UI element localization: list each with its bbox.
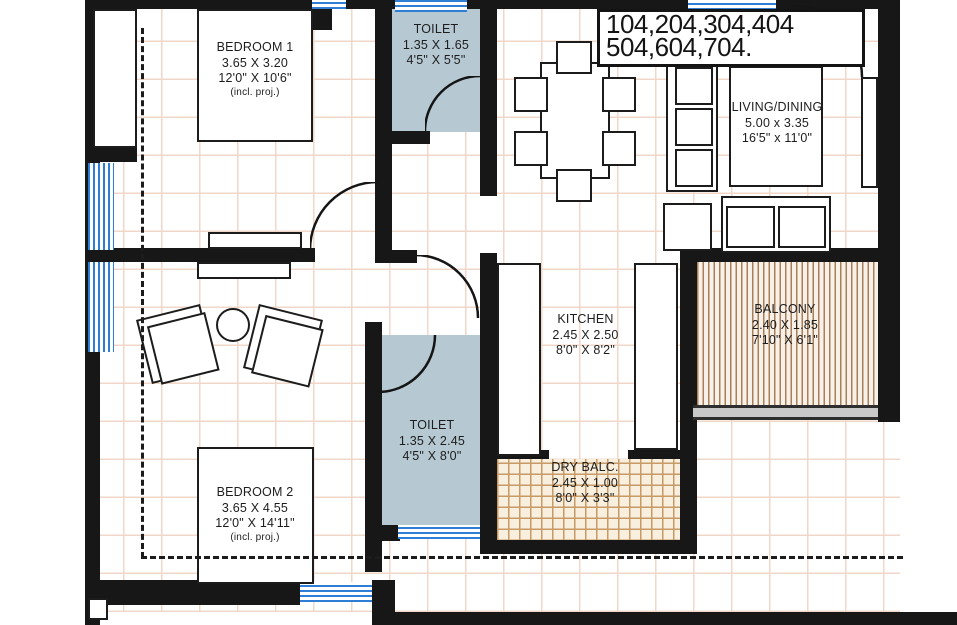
room-name: TOILET bbox=[410, 418, 455, 434]
wall-right bbox=[878, 0, 900, 422]
chair-bedroom2-right bbox=[243, 304, 323, 384]
sofa-cushion bbox=[778, 206, 827, 248]
kitchen-counter-left bbox=[497, 263, 541, 456]
room-name: DRY BALC. bbox=[551, 460, 618, 476]
projection-line-horizontal bbox=[141, 556, 903, 559]
room-name: BEDROOM 1 bbox=[217, 40, 294, 56]
room-dim-m: 5.00 x 3.35 bbox=[745, 116, 809, 132]
room-dim-m: 3.65 X 4.55 bbox=[222, 501, 288, 517]
room-dim-ft: 4'5" X 5'5" bbox=[407, 53, 466, 69]
dining-chair-right-2 bbox=[602, 131, 636, 166]
window-toilet1-top bbox=[395, 0, 467, 12]
window-top-mid bbox=[312, 0, 346, 9]
sofa-cushion bbox=[726, 206, 775, 248]
room-dim-ft: 7'10" X 6'1" bbox=[752, 333, 818, 349]
corner-detail bbox=[88, 598, 108, 620]
room-dim-ft: 12'0" X 14'11" bbox=[215, 516, 294, 532]
room-note: (incl. proj.) bbox=[230, 532, 279, 543]
living-label: LIVING/DINING 5.00 x 3.35 16'5" x 11'0" bbox=[712, 100, 842, 147]
chair-bedroom2-left bbox=[136, 304, 216, 384]
toilet1-label: TOILET 1.35 X 1.65 4'5" X 5'5" bbox=[386, 22, 486, 69]
dining-chair-left-2 bbox=[514, 131, 548, 166]
room-dim-ft: 8'0" X 8'2" bbox=[556, 343, 615, 359]
wall-dry-balc-bottom bbox=[480, 540, 697, 554]
bedroom1-label: BEDROOM 1 3.65 X 3.20 12'0" X 10'6" (inc… bbox=[187, 40, 323, 98]
sofa-three-seat bbox=[666, 62, 718, 192]
room-dim-ft: 16'5" x 11'0" bbox=[742, 131, 812, 147]
dresser-bedroom1 bbox=[208, 232, 302, 249]
wall-toilet1-bottom-stub bbox=[378, 131, 430, 144]
wall-kitchen-right bbox=[680, 248, 697, 553]
dry-balcony-label: DRY BALC. 2.45 X 1.00 8'0" X 3'3" bbox=[505, 460, 665, 507]
balcony-railing bbox=[693, 405, 878, 420]
room-name: LIVING/DINING bbox=[732, 100, 823, 116]
single-seat bbox=[663, 203, 712, 251]
room-name: KITCHEN bbox=[557, 312, 613, 328]
round-table-bedroom2 bbox=[216, 308, 250, 342]
room-name: BEDROOM 2 bbox=[217, 485, 294, 501]
wall-dry-balc-stub-right bbox=[628, 450, 680, 459]
window-toilet2-bottom bbox=[398, 525, 480, 539]
bedroom2-label: BEDROOM 2 3.65 X 4.55 12'0" X 14'11" (in… bbox=[182, 485, 328, 543]
unit-numbers-line2: 504,604,704. bbox=[606, 36, 856, 59]
sofa-cushion bbox=[675, 149, 713, 187]
dining-chair-left-1 bbox=[514, 77, 548, 112]
wall-toilet2-bottom bbox=[380, 525, 400, 541]
toilet2-label: TOILET 1.35 X 2.45 4'5" X 8'0" bbox=[382, 418, 482, 465]
room-dim-ft: 8'0" X 3'3" bbox=[556, 491, 615, 507]
dining-chair-top bbox=[556, 41, 592, 74]
door-arc-bedroom2 bbox=[415, 255, 480, 320]
room-dim-m: 1.35 X 2.45 bbox=[399, 434, 465, 450]
dresser-bedroom2 bbox=[197, 262, 291, 279]
window-bedroom2-bottom bbox=[300, 582, 372, 602]
dining-chair-right-1 bbox=[602, 77, 636, 112]
room-dim-ft: 4'5" X 8'0" bbox=[403, 449, 462, 465]
room-dim-m: 2.45 X 1.00 bbox=[552, 476, 618, 492]
room-name: BALCONY bbox=[754, 302, 815, 318]
wall-mid-column bbox=[480, 253, 497, 553]
sofa-two-seat bbox=[721, 196, 831, 253]
sofa-cushion bbox=[675, 108, 713, 146]
wall-bottom-bar bbox=[390, 612, 957, 625]
room-dim-m: 2.45 X 2.50 bbox=[552, 328, 618, 344]
room-dim-m: 3.65 X 3.20 bbox=[222, 56, 288, 72]
wall-niche-cap bbox=[85, 148, 137, 162]
balcony-label: BALCONY 2.40 X 1.85 7'10" X 6'1" bbox=[715, 302, 855, 349]
tv-unit bbox=[861, 77, 878, 188]
sofa-cushion bbox=[675, 67, 713, 105]
room-dim-m: 2.40 X 1.85 bbox=[752, 318, 818, 334]
room-dim-ft: 12'0" X 10'6" bbox=[218, 71, 291, 87]
duct-niche bbox=[93, 9, 137, 148]
projection-line-vertical bbox=[141, 28, 144, 558]
door-arc-bedroom1 bbox=[310, 182, 380, 252]
wall-bed2-door-stub bbox=[375, 250, 417, 263]
door-arc-toilet2 bbox=[378, 335, 437, 394]
kitchen-label: KITCHEN 2.45 X 2.50 8'0" X 8'2" bbox=[528, 312, 643, 359]
window-bedroom2-left bbox=[88, 262, 114, 352]
room-note: (incl. proj.) bbox=[230, 87, 279, 98]
floor-plan: BEDROOM 1 3.65 X 3.20 12'0" X 10'6" (inc… bbox=[0, 0, 957, 625]
window-bedroom1-left bbox=[88, 163, 114, 250]
wall-between-bedrooms bbox=[85, 248, 315, 262]
room-name: TOILET bbox=[414, 22, 459, 38]
unit-numbers-box: 104,204,304,404 504,604,704. bbox=[597, 9, 865, 67]
dining-table bbox=[540, 62, 610, 179]
dining-chair-bottom bbox=[556, 169, 592, 202]
door-arc-toilet1 bbox=[425, 76, 482, 133]
room-dim-m: 1.35 X 1.65 bbox=[403, 38, 469, 54]
